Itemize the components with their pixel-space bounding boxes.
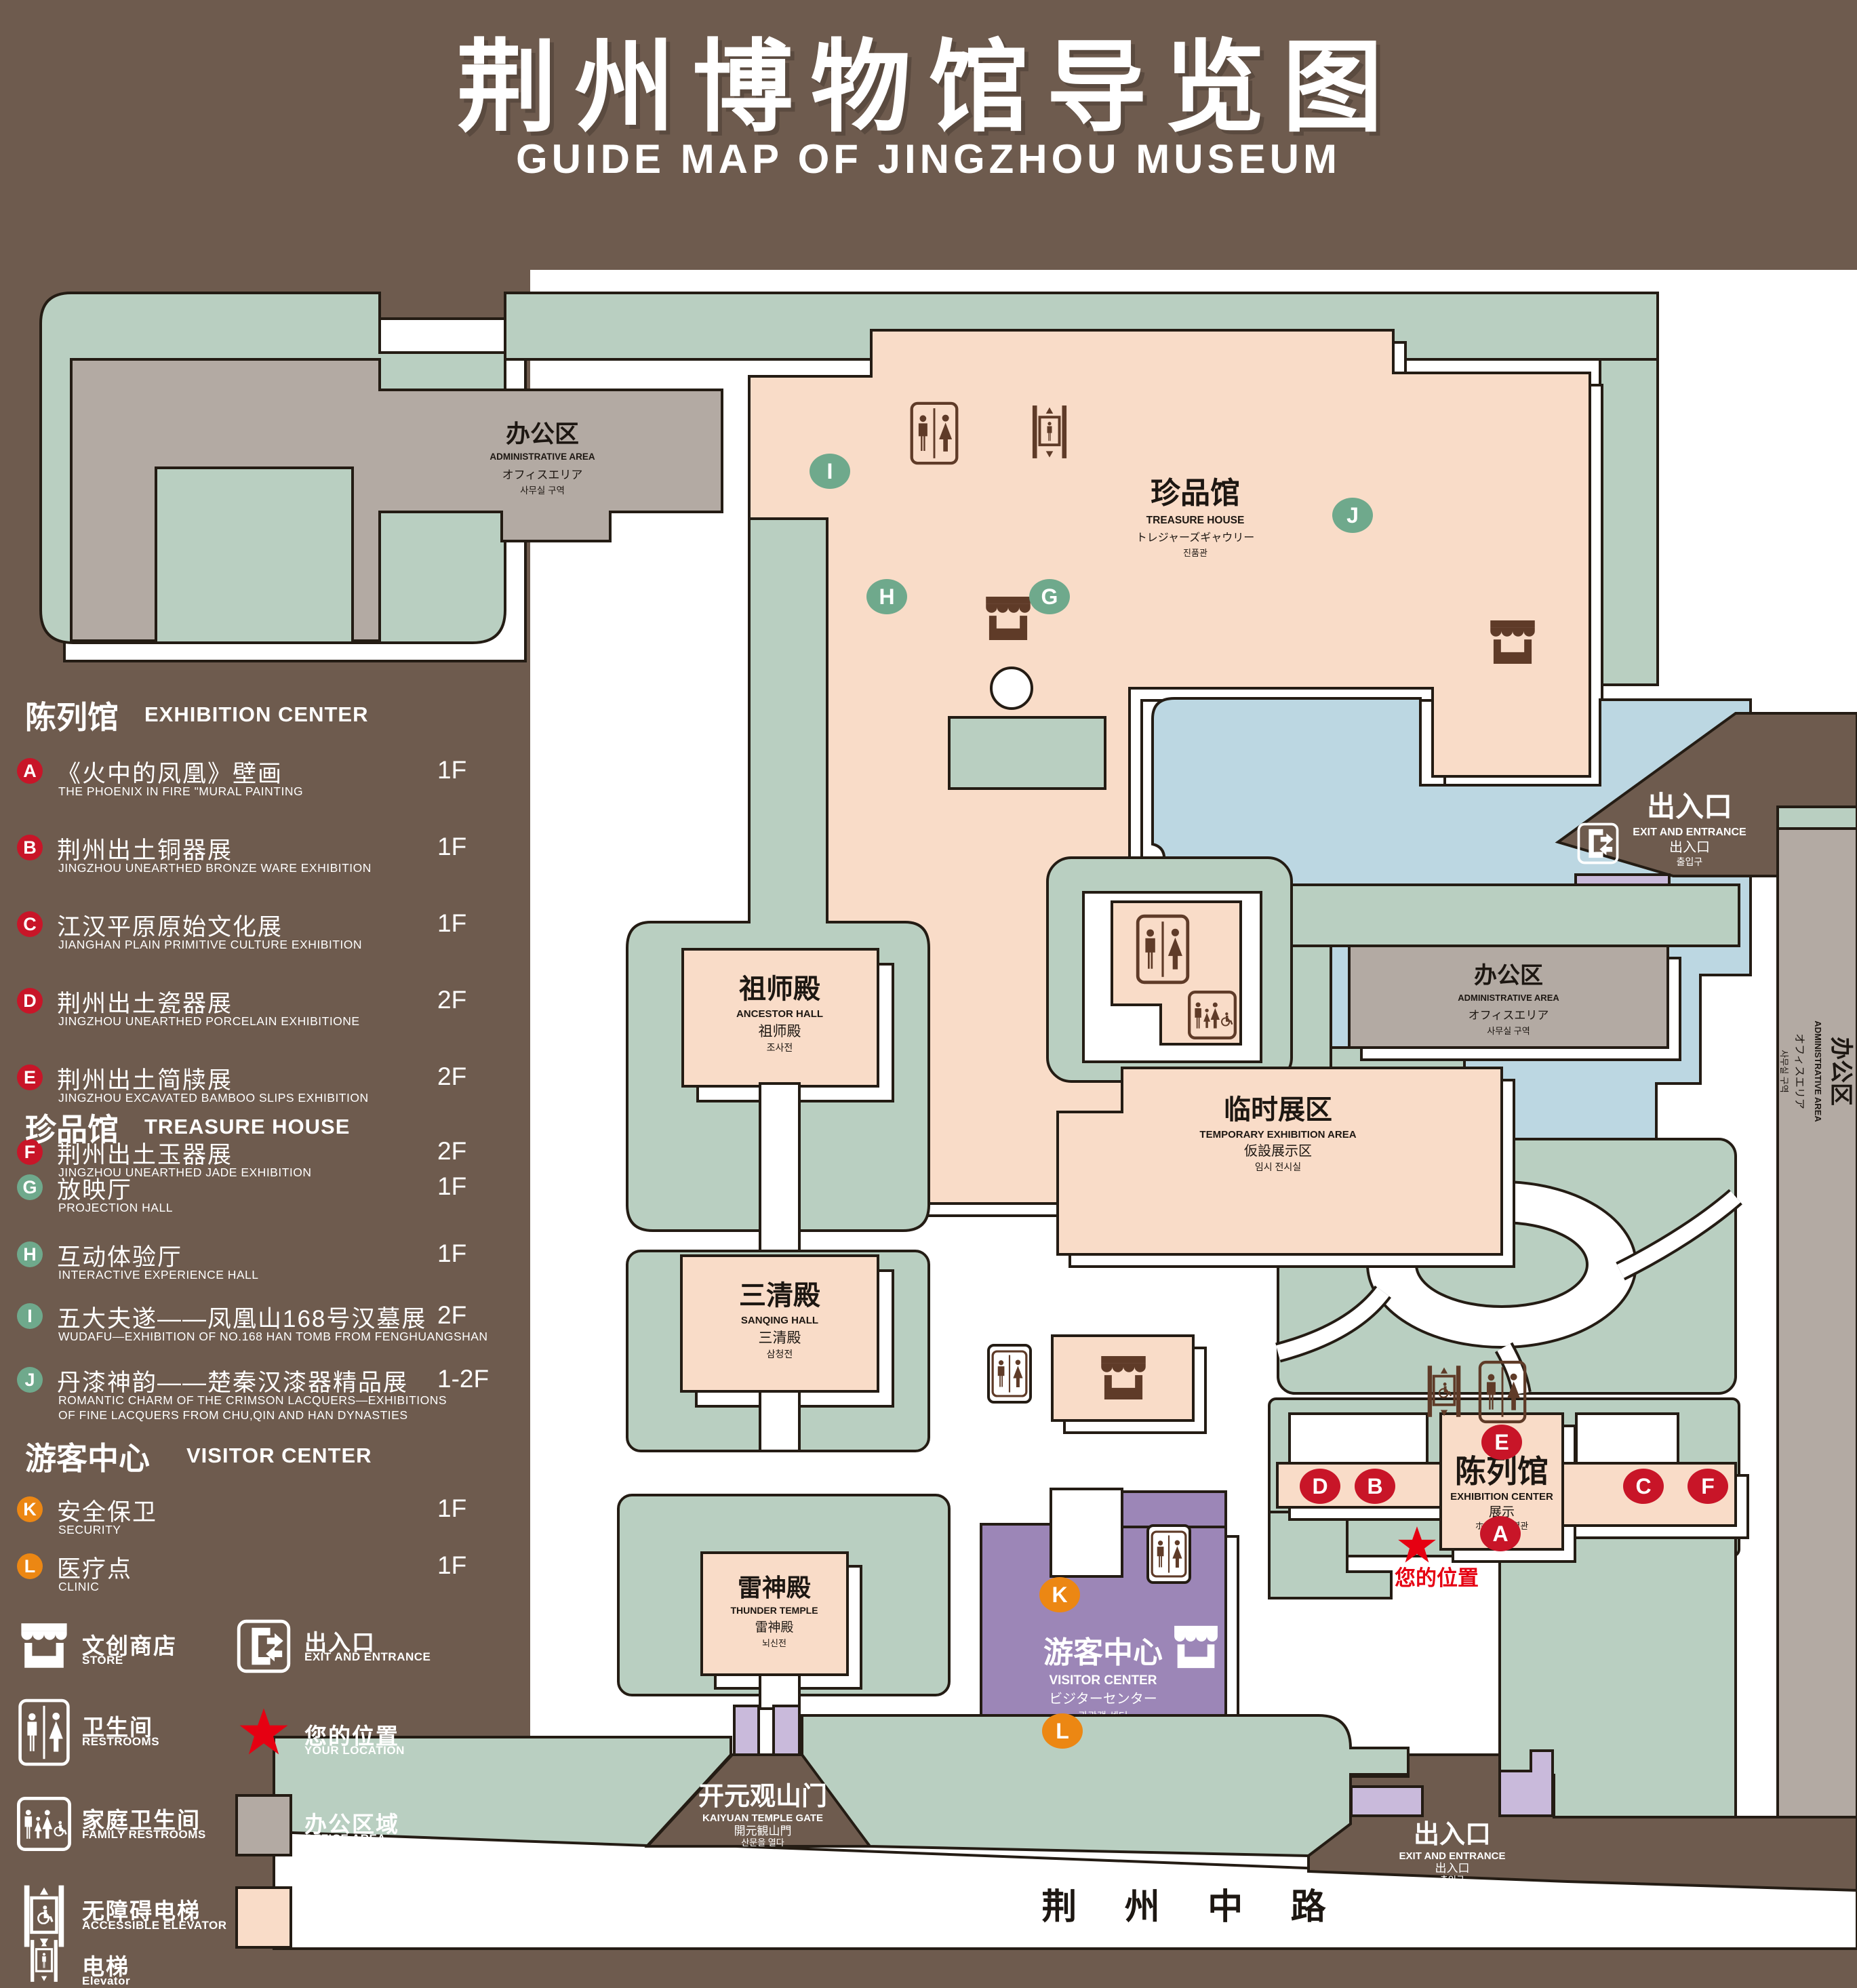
label-admin-east-ja: オフィスエリア bbox=[1793, 1033, 1805, 1109]
map-marker-letter: E bbox=[1494, 1430, 1509, 1454]
legend-item-marker-A[interactable]: A bbox=[17, 758, 43, 784]
label-visitor-zh: 游客中心 bbox=[1043, 1636, 1163, 1669]
legend-sidebar: 陈列馆EXHIBITION CENTERA《火中的凤凰》壁画THE PHOENI… bbox=[0, 0, 536, 1985]
label-exit-ne-ko: 출입구 bbox=[1677, 856, 1703, 867]
label-treasure-ko: 진품관 bbox=[1183, 548, 1207, 558]
legend-section-title-zh: 珍品馆 bbox=[25, 1105, 119, 1150]
legend-item-marker-I[interactable]: I bbox=[17, 1303, 43, 1329]
label-sanqing-en: SANQING HALL bbox=[741, 1315, 818, 1326]
label-admin-east-zh: 办公区 bbox=[1828, 1037, 1854, 1106]
star-icon bbox=[239, 1708, 287, 1754]
legend-item-name-en: WUDAFU—EXHIBITION OF NO.168 HAN TOMB FRO… bbox=[58, 1330, 488, 1344]
label-thunder-ja: 雷神殿 bbox=[755, 1620, 793, 1635]
legend-symbol-display-swatch-en: DISPLAY AREA bbox=[304, 1924, 393, 1938]
map-marker-letter: H bbox=[879, 584, 894, 609]
label-gate-ko: 산문을 열다 bbox=[741, 1837, 784, 1848]
label-exit-s-en: EXIT AND ENTRANCE bbox=[1399, 1850, 1506, 1862]
legend-item-name-en: PROJECTION HALL bbox=[58, 1201, 173, 1215]
area-lawn-northeast bbox=[1600, 359, 1658, 685]
legend-symbol-elevator-en: Elevator bbox=[82, 1974, 130, 1988]
label-thunder-zh: 雷神殿 bbox=[738, 1574, 811, 1602]
exit-icon bbox=[239, 1621, 289, 1671]
label-temp-ko: 임시 전시실 bbox=[1255, 1161, 1301, 1172]
legend-section-title-zh: 游客中心 bbox=[25, 1434, 150, 1479]
label-gate-zh: 开元观山门 bbox=[698, 1783, 827, 1811]
legend-item-marker-E[interactable]: E bbox=[17, 1065, 43, 1090]
restroom-icon bbox=[20, 1701, 68, 1764]
building-temporary-exhibition[interactable]: 临时展区 TEMPORARY EXHIBITION AREA 仮設展示区 임시 … bbox=[1058, 1068, 1514, 1267]
legend-symbol-store-en: STORE bbox=[82, 1654, 123, 1667]
legend-item-marker-C[interactable]: C bbox=[17, 911, 43, 937]
legend-section-title-zh: 陈列馆 bbox=[25, 693, 119, 738]
label-thunder-ko: 뇌신전 bbox=[762, 1638, 786, 1648]
legend-item-marker-L[interactable]: L bbox=[17, 1553, 43, 1579]
label-thunder-en: THUNDER TEMPLE bbox=[730, 1605, 818, 1616]
display-area-swatch bbox=[237, 1888, 291, 1947]
elevator-icon bbox=[31, 1940, 58, 1982]
area-thunder-temple[interactable]: 雷神殿 THUNDER TEMPLE 雷神殿 뇌신전 bbox=[618, 1495, 949, 1709]
legend-item-floor: 1F bbox=[437, 909, 466, 938]
office-area-swatch bbox=[237, 1795, 291, 1855]
label-ancestor-en: ANCESTOR HALL bbox=[736, 1008, 823, 1020]
map-marker-B[interactable]: B bbox=[1355, 1469, 1395, 1504]
label-admin-mid-ko: 사무실 구역 bbox=[1487, 1026, 1530, 1036]
legend-item-name-en: JINGZHOU EXCAVATED BAMBOO SLIPS EXHIBITI… bbox=[58, 1091, 369, 1105]
legend-item-name-en: INTERACTIVE EXPERIENCE HALL bbox=[58, 1268, 259, 1282]
label-road: 荆 州 中 路 bbox=[1041, 1888, 1344, 1927]
legend-item-name-en: JINGZHOU UNEARTHED PORCELAIN EXHIBITIONE bbox=[58, 1014, 360, 1029]
label-sanqing-ko: 삼청전 bbox=[767, 1349, 793, 1359]
label-ancestor-ja: 祖师殿 bbox=[759, 1024, 801, 1039]
label-exit-s-ja: 出入口 bbox=[1435, 1862, 1470, 1875]
legend-item-floor: 1F bbox=[437, 1494, 466, 1523]
label-admin-east-ko: 사무실 구역 bbox=[1779, 1050, 1789, 1092]
label-visitor-en: VISITOR CENTER bbox=[1049, 1673, 1157, 1688]
label-exit-ne-ja: 出入口 bbox=[1669, 839, 1710, 855]
map-marker-letter: B bbox=[1367, 1474, 1382, 1498]
label-treasure-en: TREASURE HOUSE bbox=[1146, 515, 1245, 526]
map-marker-H[interactable]: H bbox=[866, 579, 907, 614]
label-exit-ne-zh: 出入口 bbox=[1647, 791, 1732, 822]
legend-symbol-office-swatch-en: OFFICE AREA bbox=[304, 1832, 386, 1846]
map-marker-I[interactable]: I bbox=[810, 454, 850, 489]
area-sanqing-hall[interactable]: 三清殿 SANQING HALL 三清殿 삼청전 bbox=[627, 1251, 929, 1451]
map-marker-C[interactable]: C bbox=[1623, 1469, 1664, 1504]
legend-item-floor: 1F bbox=[437, 756, 466, 784]
label-temp-zh: 临时展区 bbox=[1224, 1095, 1332, 1125]
legend-item-marker-J[interactable]: J bbox=[17, 1367, 43, 1393]
legend-item-name-en: JINGZHOU UNEARTHED BRONZE WARE EXHIBITIO… bbox=[58, 861, 372, 875]
family-restroom-icon bbox=[18, 1798, 69, 1849]
label-exit-s-ko: 출입구 bbox=[1440, 1875, 1464, 1885]
legend-item-marker-D[interactable]: D bbox=[17, 988, 43, 1014]
map-marker-D[interactable]: D bbox=[1300, 1469, 1340, 1504]
building-visitor-center[interactable]: 游客中心 VISITOR CENTER ビジターセンター 관광객 센터 bbox=[981, 1489, 1238, 1746]
legend-item-floor: 2F bbox=[437, 1301, 466, 1330]
label-sanqing-ja: 三清殿 bbox=[759, 1330, 801, 1346]
area-lawn-south bbox=[802, 1715, 1408, 1856]
label-admin-mid-ja: オフィスエリア bbox=[1469, 1009, 1549, 1022]
label-exhibition-en: EXHIBITION CENTER bbox=[1450, 1491, 1553, 1503]
map-marker-letter: F bbox=[1701, 1474, 1715, 1498]
legend-item-marker-B[interactable]: B bbox=[17, 835, 43, 860]
legend-item-floor: 1F bbox=[437, 1551, 466, 1580]
legend-symbol-family-restroom-en: FAMILY RESTROOMS bbox=[82, 1828, 206, 1842]
label-treasure-ja: トレジャーズギャウリー bbox=[1136, 532, 1254, 544]
legend-item-name-en: JIANGHAN PLAIN PRIMITIVE CULTURE EXHIBIT… bbox=[58, 938, 362, 952]
label-gate-ja: 開元観山門 bbox=[734, 1825, 792, 1837]
building-store[interactable] bbox=[1052, 1336, 1193, 1420]
legend-item-floor: 1F bbox=[437, 1172, 466, 1201]
label-admin-east-en: ADMINISTRATIVE AREA bbox=[1813, 1020, 1823, 1122]
map-marker-A[interactable]: A bbox=[1480, 1516, 1521, 1551]
label-admin-mid-en: ADMINISTRATIVE AREA bbox=[1458, 993, 1559, 1003]
legend-section-title-en: TREASURE HOUSE bbox=[144, 1115, 350, 1139]
legend-symbol-exit-en: EXIT AND ENTRANCE bbox=[304, 1650, 431, 1664]
legend-symbol-star-en: YOUR LOCATION bbox=[304, 1744, 405, 1757]
label-exit-s-zh: 出入口 bbox=[1414, 1821, 1491, 1849]
map-marker-letter: C bbox=[1635, 1474, 1651, 1498]
legend-item-marker-K[interactable]: K bbox=[17, 1496, 43, 1522]
map-marker-letter: D bbox=[1312, 1474, 1327, 1498]
store-icon bbox=[21, 1623, 66, 1668]
legend-item-marker-H[interactable]: H bbox=[17, 1241, 43, 1267]
map-marker-K[interactable]: K bbox=[1039, 1577, 1080, 1612]
legend-item-floor: 1F bbox=[437, 833, 466, 861]
accessible-elevator-icon bbox=[24, 1886, 64, 1947]
label-admin-mid-zh: 办公区 bbox=[1474, 963, 1543, 989]
label-your-location: 您的位置 bbox=[1395, 1566, 1479, 1590]
legend-item-floor: 2F bbox=[437, 1062, 466, 1091]
label-temp-en: TEMPORARY EXHIBITION AREA bbox=[1199, 1129, 1356, 1140]
label-treasure-zh: 珍品馆 bbox=[1151, 477, 1240, 510]
area-restroom-block bbox=[1047, 858, 1292, 1081]
legend-symbol-restroom-en: RESTROOMS bbox=[82, 1735, 159, 1749]
legend-item-floor: 2F bbox=[437, 1137, 466, 1166]
legend-item-floor: 1F bbox=[437, 1239, 466, 1268]
map-marker-E[interactable]: E bbox=[1481, 1425, 1522, 1460]
map-marker-letter: K bbox=[1052, 1583, 1067, 1607]
label-ancestor-zh: 祖师殿 bbox=[739, 974, 820, 1004]
label-temp-ja: 仮設展示区 bbox=[1244, 1143, 1312, 1159]
legend-item-name-en: SECURITY bbox=[58, 1523, 121, 1537]
map-marker-L[interactable]: L bbox=[1042, 1713, 1083, 1749]
map-marker-J[interactable]: J bbox=[1332, 498, 1373, 533]
area-admin-east[interactable]: 办公区 ADMINISTRATIVE AREA オフィスエリア 사무실 구역 bbox=[1778, 807, 1857, 1873]
label-exit-ne-en: EXIT AND ENTRANCE bbox=[1633, 827, 1746, 838]
legend-item-name-en2: OF FINE LACQUERS FROM CHU,QIN AND HAN DY… bbox=[58, 1408, 408, 1423]
map-marker-letter: L bbox=[1056, 1719, 1069, 1743]
label-gate-en: KAIYUAN TEMPLE GATE bbox=[702, 1812, 823, 1824]
legend-item-name-en: CLINIC bbox=[58, 1580, 99, 1594]
map-marker-G[interactable]: G bbox=[1029, 579, 1070, 614]
map-marker-F[interactable]: F bbox=[1688, 1469, 1728, 1504]
legend-item-name-en: THE PHOENIX IN FIRE "MURAL PAINTING bbox=[58, 784, 303, 799]
map-marker-letter: J bbox=[1346, 503, 1359, 528]
legend-section-title-en: VISITOR CENTER bbox=[186, 1444, 372, 1468]
legend-item-marker-G[interactable]: G bbox=[17, 1174, 43, 1200]
legend-item-floor: 2F bbox=[437, 986, 466, 1014]
label-sanqing-zh: 三清殿 bbox=[739, 1281, 820, 1311]
legend-section-title-en: EXHIBITION CENTER bbox=[144, 702, 368, 727]
label-ancestor-ko: 조사전 bbox=[767, 1042, 793, 1053]
legend-symbol-accessible-elevator-en: ACCESSIBLE ELEVATOR bbox=[82, 1919, 227, 1932]
legend-item-name-en: ROMANTIC CHARM OF THE CRIMSON LACQUERS—E… bbox=[58, 1393, 447, 1408]
legend-item-floor: 1-2F bbox=[437, 1365, 489, 1393]
label-visitor-ja: ビジターセンター bbox=[1049, 1691, 1157, 1707]
map-marker-letter: I bbox=[827, 459, 833, 483]
map-marker-letter: G bbox=[1041, 584, 1058, 609]
map-marker-letter: A bbox=[1492, 1522, 1508, 1546]
